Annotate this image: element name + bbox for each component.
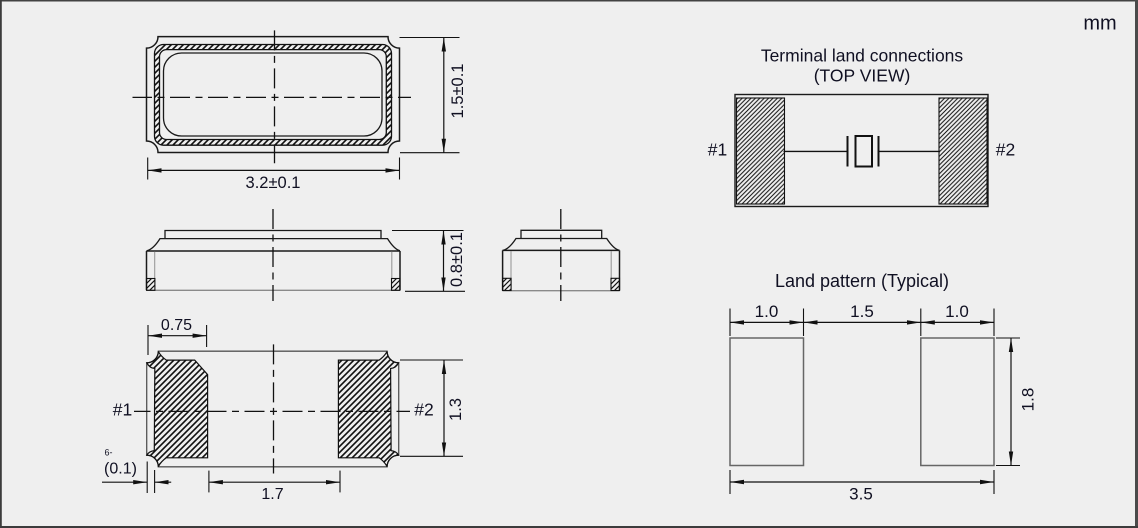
svg-text:(0.1): (0.1) xyxy=(104,460,137,477)
svg-text:#1: #1 xyxy=(708,140,727,160)
svg-text:mm: mm xyxy=(1083,12,1116,34)
svg-text:0.8±0.1: 0.8±0.1 xyxy=(448,232,466,287)
svg-text:1.3: 1.3 xyxy=(447,398,465,421)
svg-text:1.0: 1.0 xyxy=(945,302,969,321)
svg-text:1.0: 1.0 xyxy=(755,302,779,321)
svg-text:1.5: 1.5 xyxy=(850,302,874,321)
svg-text:#2: #2 xyxy=(414,400,433,420)
svg-text:Terminal land connections: Terminal land connections xyxy=(761,46,964,66)
svg-text:0.75: 0.75 xyxy=(161,317,192,334)
svg-text:1.5±0.1: 1.5±0.1 xyxy=(449,64,467,119)
svg-text:1.8: 1.8 xyxy=(1019,388,1038,412)
svg-text:(TOP VIEW): (TOP VIEW) xyxy=(814,66,911,86)
svg-text:#2: #2 xyxy=(996,140,1015,160)
svg-text:3.2±0.1: 3.2±0.1 xyxy=(246,174,301,192)
svg-text:6-: 6- xyxy=(105,448,113,458)
svg-text:Land pattern (Typical): Land pattern (Typical) xyxy=(775,271,949,291)
svg-text:#1: #1 xyxy=(113,400,132,420)
svg-text:1.7: 1.7 xyxy=(261,486,283,503)
svg-text:3.5: 3.5 xyxy=(849,485,873,504)
